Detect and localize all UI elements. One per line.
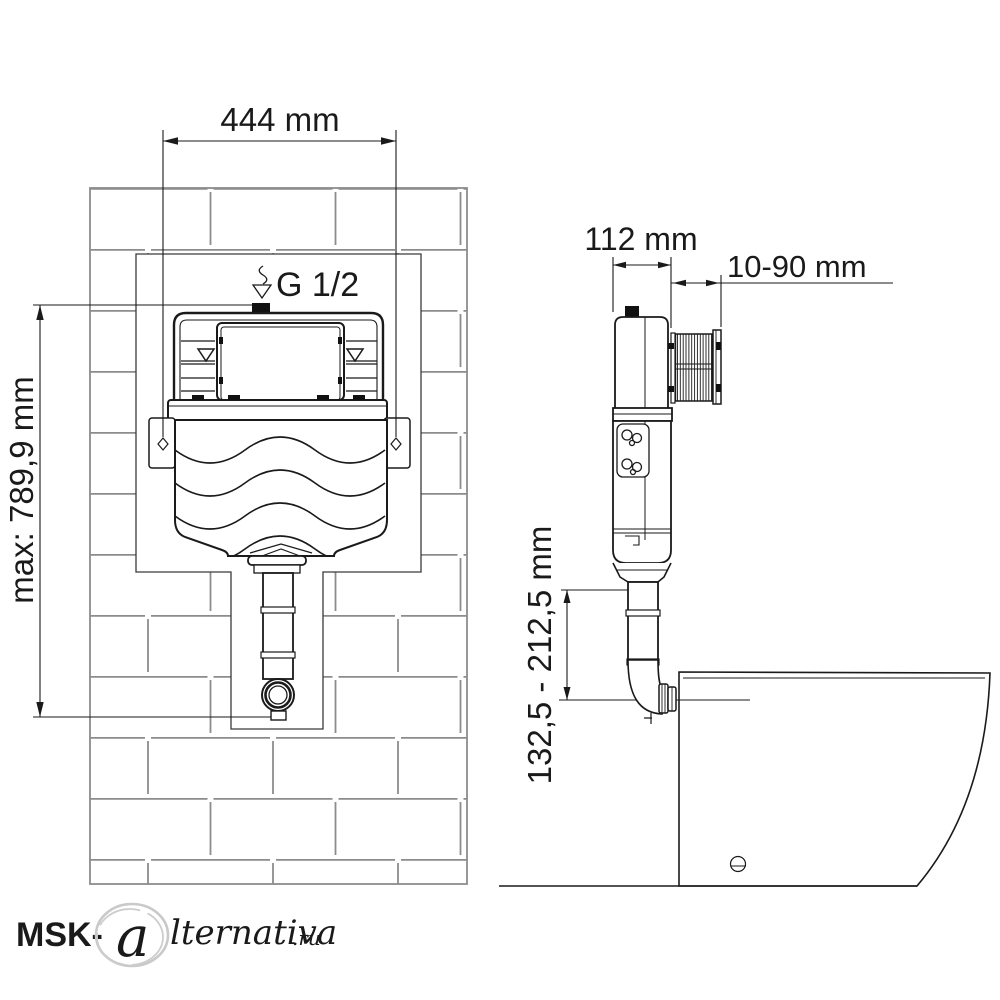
watermark-prefix: MSK- (16, 916, 103, 954)
height-dim-label: max: 789,9 mm (3, 376, 40, 603)
dimension-wall-distance: 10-90 mm (671, 249, 893, 327)
mounting-plate (617, 424, 649, 477)
outlet-elbow (628, 660, 676, 724)
inlet-cap (252, 303, 270, 312)
watermark-suffix: .ru (292, 926, 321, 950)
arrow-right-icon (706, 280, 719, 286)
wall-bellows (668, 330, 721, 404)
panel-clip-icon (219, 377, 223, 384)
arrow-left-icon (163, 137, 178, 145)
bellows-end-flange (713, 330, 721, 404)
arrow-up-icon (564, 590, 571, 603)
flush-pipe-side (613, 563, 671, 665)
panel-clip-icon (338, 377, 342, 384)
elbow-clip (644, 713, 652, 724)
arrow-up-icon (36, 305, 43, 320)
arrow-right-icon (658, 262, 671, 268)
connector-gasket (659, 684, 668, 713)
arrow-down-icon (36, 702, 43, 717)
arrow-right-icon (381, 137, 396, 145)
cistern-side-view (613, 306, 672, 665)
watermark: MSK- a lternativa .ru (16, 904, 337, 970)
toilet-bowl (679, 672, 990, 886)
arrow-left-icon (673, 280, 686, 286)
front-view: 444 mm max: 789,9 mm G 1/2 (3, 101, 467, 884)
wall-distance-label: 10-90 mm (727, 249, 867, 284)
panel-clip-icon (219, 337, 223, 344)
water-tank (175, 420, 387, 562)
inlet-label: G 1/2 (276, 266, 359, 304)
panel-clip-icon (338, 337, 342, 344)
dimension-outlet-height: 132,5 - 212,5 mm (521, 526, 628, 785)
outlet-height-label: 132,5 - 212,5 mm (521, 526, 558, 785)
width-dim-label: 444 mm (220, 101, 339, 138)
watermark-stamp-letter: a (116, 905, 149, 970)
technical-drawing-page: 444 mm max: 789,9 mm G 1/2 (0, 0, 1000, 1000)
installation-drawing: 444 mm max: 789,9 mm G 1/2 (0, 0, 1000, 1000)
depth-dim-label: 112 mm (584, 221, 697, 257)
arrow-down-icon (564, 687, 571, 700)
wall-bracket-left (149, 418, 175, 468)
dimension-depth-112: 112 mm (584, 221, 697, 328)
inlet-cap-side (625, 306, 639, 317)
side-view: 112 mm 10-90 mm 132,5 - 212,5 mm (499, 221, 990, 886)
fixing-hole-icon (731, 857, 746, 872)
arrow-left-icon (613, 262, 626, 268)
